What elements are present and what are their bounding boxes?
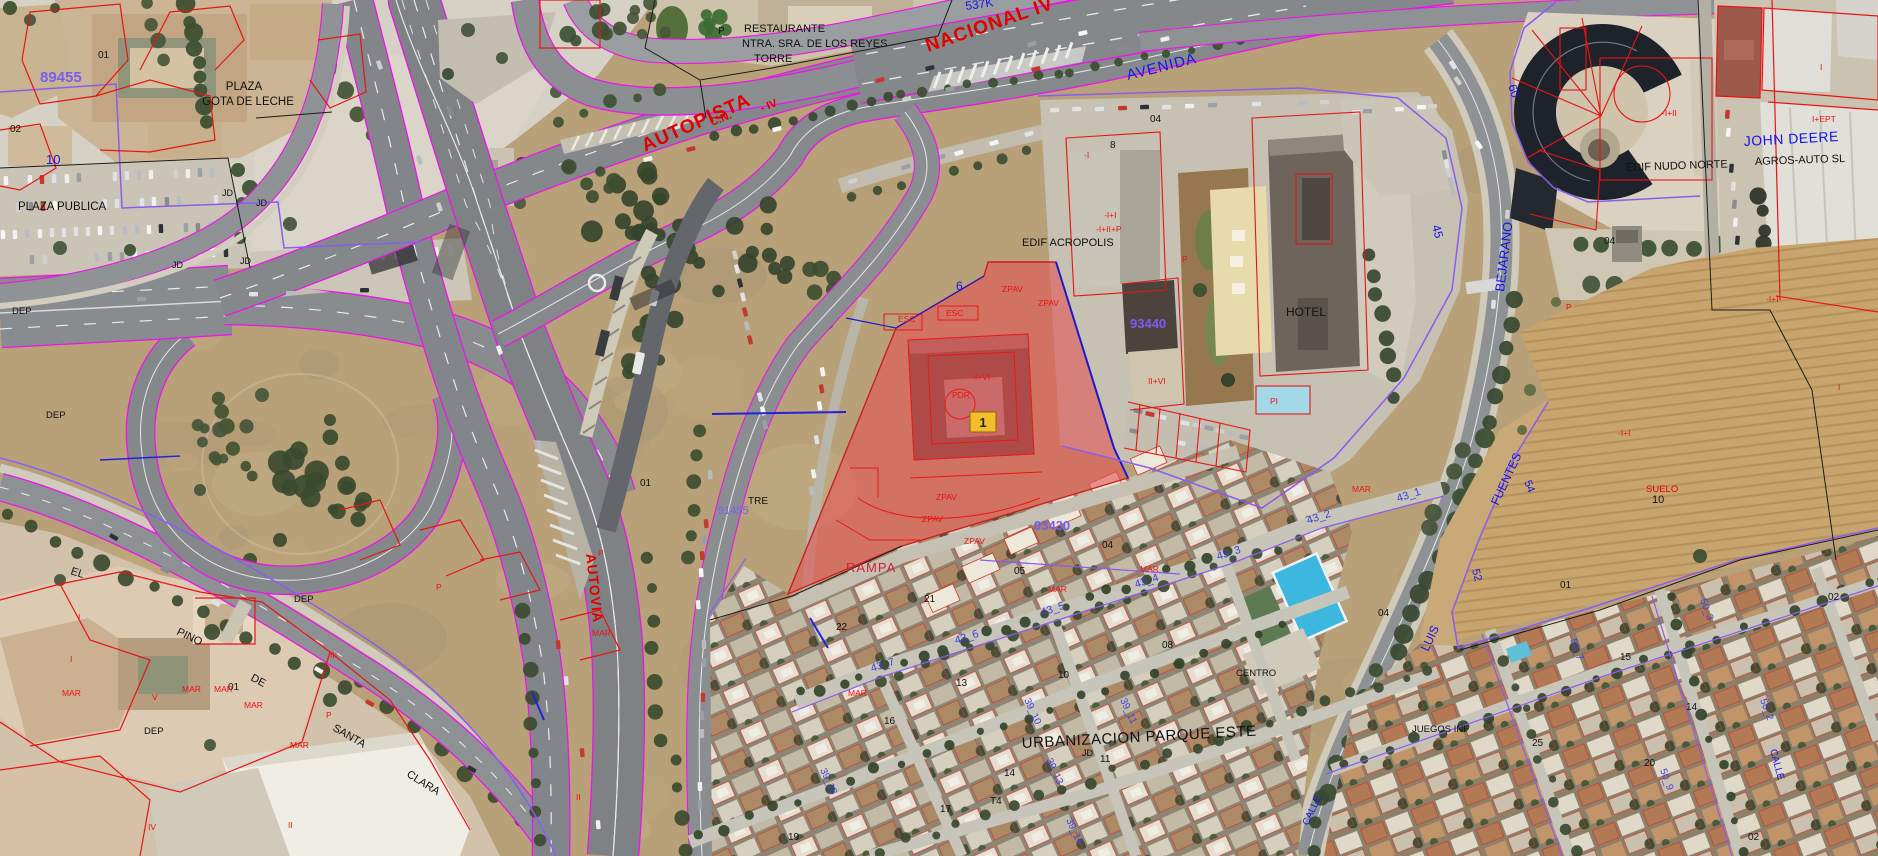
svg-text:01: 01 <box>1560 580 1572 591</box>
svg-text:I: I <box>1820 62 1822 72</box>
svg-text:6: 6 <box>956 279 963 293</box>
svg-text:P: P <box>598 548 604 558</box>
svg-text:93440: 93440 <box>1130 316 1166 331</box>
svg-text:JUEGOS INF: JUEGOS INF <box>1412 724 1469 735</box>
svg-text:JD: JD <box>1082 748 1094 758</box>
svg-text:MAR: MAR <box>1352 484 1371 494</box>
svg-text:20: 20 <box>1644 758 1656 769</box>
svg-text:04: 04 <box>1102 540 1114 551</box>
svg-text:P: P <box>1182 254 1188 264</box>
svg-text:02: 02 <box>1828 592 1840 603</box>
svg-text:21: 21 <box>924 594 936 605</box>
svg-text:93430: 93430 <box>1034 518 1070 533</box>
svg-text:13: 13 <box>956 678 968 689</box>
svg-text:II: II <box>576 792 581 802</box>
svg-text:ZPAV: ZPAV <box>1002 284 1023 294</box>
svg-text:19: 19 <box>788 832 800 843</box>
svg-text:ZPAV: ZPAV <box>922 514 943 524</box>
svg-text:P: P <box>436 582 442 592</box>
svg-text:P: P <box>718 26 725 37</box>
svg-text:02: 02 <box>10 124 22 135</box>
svg-text:GOTA DE LECHE: GOTA DE LECHE <box>202 96 294 108</box>
svg-text:04: 04 <box>1604 236 1616 247</box>
svg-text:EDIF ACROPOLIS: EDIF ACROPOLIS <box>1022 237 1114 249</box>
svg-text:-I+VI: -I+VI <box>972 372 990 382</box>
svg-text:DEP: DEP <box>144 726 164 737</box>
svg-text:PLAZA PUBLICA: PLAZA PUBLICA <box>18 201 107 213</box>
svg-text:10: 10 <box>1652 494 1664 506</box>
svg-text:I+EPT: I+EPT <box>1812 114 1836 124</box>
svg-text:PLAZA: PLAZA <box>226 81 263 93</box>
svg-text:I: I <box>1838 382 1840 392</box>
svg-text:08: 08 <box>1162 640 1174 651</box>
svg-text:P: P <box>326 710 332 720</box>
svg-text:05: 05 <box>1014 566 1026 577</box>
svg-text:-I+I: -I+I <box>1104 210 1117 220</box>
svg-text:PI: PI <box>1270 396 1278 406</box>
svg-text:JD: JD <box>172 260 184 270</box>
svg-text:T4: T4 <box>990 796 1002 807</box>
svg-text:25: 25 <box>1532 738 1544 749</box>
svg-text:-I+I: -I+I <box>1618 428 1631 438</box>
svg-text:17: 17 <box>940 804 952 815</box>
svg-text:ZPAV: ZPAV <box>964 536 985 546</box>
svg-text:JD: JD <box>222 188 234 198</box>
svg-text:22: 22 <box>836 622 848 633</box>
svg-text:16: 16 <box>884 716 896 727</box>
svg-text:NTRA. SRA. DE LOS REYES: NTRA. SRA. DE LOS REYES <box>742 38 887 50</box>
svg-text:10: 10 <box>46 152 60 167</box>
svg-text:PDR: PDR <box>952 390 970 400</box>
svg-text:CENTRO: CENTRO <box>1236 668 1276 679</box>
svg-text:15: 15 <box>1620 652 1632 663</box>
svg-text:HOTEL: HOTEL <box>1286 305 1326 319</box>
svg-text:MAR: MAR <box>290 740 309 750</box>
svg-text:1: 1 <box>979 415 986 430</box>
svg-text:04: 04 <box>1378 608 1390 619</box>
svg-text:-I+II+P: -I+II+P <box>1096 224 1122 234</box>
svg-text:14: 14 <box>1686 702 1698 713</box>
svg-text:MAR: MAR <box>62 688 81 698</box>
svg-text:IV: IV <box>148 822 156 832</box>
svg-text:8: 8 <box>1110 140 1116 151</box>
svg-text:III: III <box>330 650 337 660</box>
svg-text:89455: 89455 <box>40 69 82 86</box>
svg-text:MAR: MAR <box>592 628 611 638</box>
svg-text:-I+I: -I+I <box>1766 294 1779 304</box>
svg-text:JD: JD <box>256 198 268 208</box>
svg-text:V: V <box>152 692 158 702</box>
svg-text:-I+II: -I+II <box>1662 108 1677 118</box>
svg-text:TORRE: TORRE <box>754 53 792 65</box>
svg-text:P: P <box>1566 302 1572 312</box>
svg-text:DEP: DEP <box>12 306 32 317</box>
svg-text:MAR: MAR <box>244 700 263 710</box>
svg-text:DEP: DEP <box>46 410 66 421</box>
svg-text:RESTAURANTE: RESTAURANTE <box>744 23 825 35</box>
svg-text:I: I <box>78 612 80 622</box>
svg-text:JD: JD <box>240 256 252 266</box>
svg-text:MAR: MAR <box>182 684 201 694</box>
svg-text:01: 01 <box>98 50 110 61</box>
svg-text:01: 01 <box>640 478 652 489</box>
svg-text:14: 14 <box>1004 768 1016 779</box>
svg-text:MAR: MAR <box>1140 564 1159 574</box>
svg-text:MAR: MAR <box>1048 584 1067 594</box>
svg-text:II: II <box>288 820 293 830</box>
svg-text:ZPAV: ZPAV <box>1038 298 1059 308</box>
svg-text:ZPAV: ZPAV <box>936 492 957 502</box>
svg-text:91455: 91455 <box>718 505 749 517</box>
svg-text:MAR: MAR <box>848 688 867 698</box>
svg-text:DEP: DEP <box>294 594 314 605</box>
svg-text:11: 11 <box>1100 754 1111 765</box>
svg-text:04: 04 <box>1150 114 1162 125</box>
svg-text:ESC: ESC <box>898 314 915 324</box>
svg-text:TRE: TRE <box>748 496 768 507</box>
svg-text:10: 10 <box>1058 670 1070 681</box>
svg-text:I: I <box>70 654 72 664</box>
svg-text:MAR: MAR <box>214 684 233 694</box>
svg-text:RAMPA: RAMPA <box>846 560 896 575</box>
svg-text:02: 02 <box>1748 832 1760 843</box>
svg-text:-I: -I <box>1084 150 1089 160</box>
svg-text:ESC: ESC <box>946 308 963 318</box>
svg-text:II+VI: II+VI <box>1148 376 1166 386</box>
